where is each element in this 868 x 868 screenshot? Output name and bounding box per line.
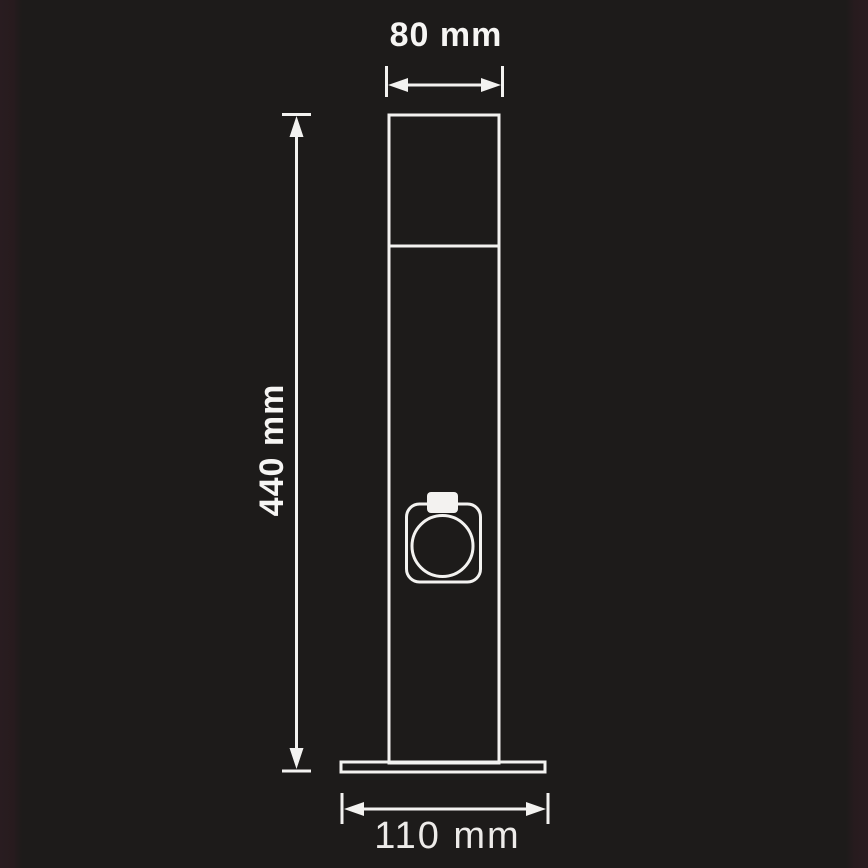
dimension-label-top-width: 80 mm	[336, 16, 556, 55]
post-body-outline	[389, 115, 499, 763]
dimension-top-width	[387, 66, 503, 97]
arrowhead-right-icon	[526, 802, 546, 816]
bollard-light-drawing	[0, 0, 868, 868]
arrowhead-down-icon	[290, 748, 304, 769]
dimension-label-height: 440 mm	[250, 350, 294, 550]
dimension-label-base-width: 110 mm	[330, 815, 565, 858]
base-plate-outline	[341, 762, 545, 772]
socket-circle	[412, 516, 473, 577]
arrowhead-up-icon	[290, 116, 304, 137]
socket-lid-tab	[427, 492, 458, 513]
arrowhead-left-icon	[388, 78, 408, 92]
arrowhead-right-icon	[481, 78, 501, 92]
arrowhead-left-icon	[344, 802, 364, 816]
post-outline	[389, 115, 499, 763]
power-socket	[407, 492, 481, 582]
diagram-canvas: 80 mm 440 mm 110 mm	[0, 0, 868, 868]
